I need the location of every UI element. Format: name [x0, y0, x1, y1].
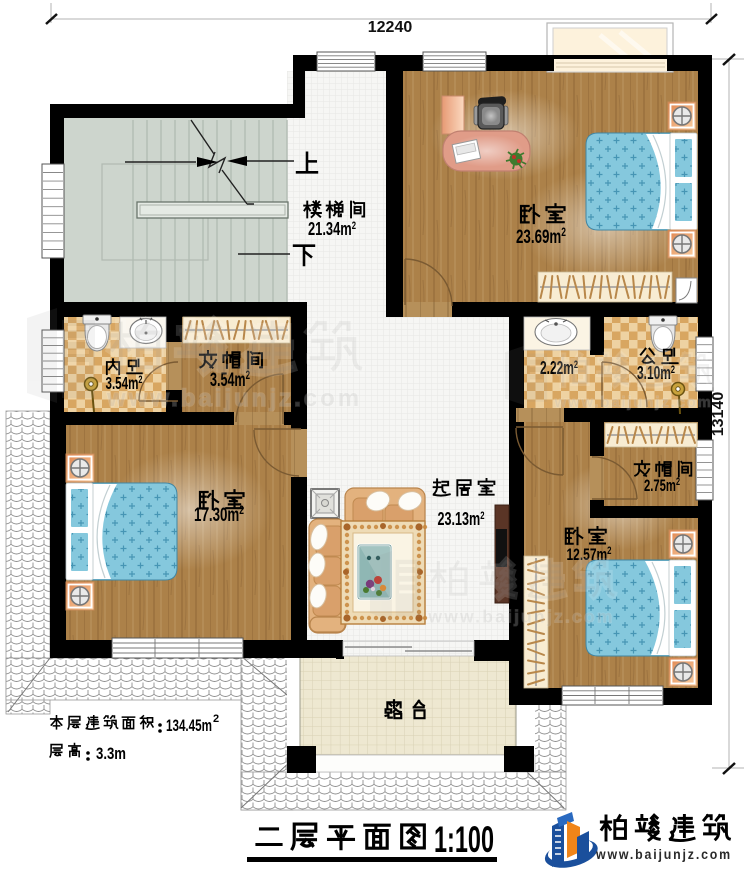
svg-text:23.69m2: 23.69m2 — [516, 225, 566, 248]
svg-text:www.baijunjz.com: www.baijunjz.com — [106, 385, 362, 412]
svg-text:2.75m2: 2.75m2 — [644, 476, 680, 495]
svg-text:21.34m2: 21.34m2 — [308, 218, 356, 239]
svg-text:1:100: 1:100 — [434, 819, 494, 860]
svg-text:17.30m2: 17.30m2 — [194, 503, 244, 526]
svg-text:www.baijunjz.com: www.baijunjz.com — [427, 607, 614, 627]
svg-text:134.45m: 134.45m — [166, 716, 212, 735]
svg-text:2: 2 — [213, 713, 219, 725]
svg-text:12240: 12240 — [368, 19, 413, 36]
svg-text:www.baijunjz.com: www.baijunjz.com — [554, 395, 713, 411]
svg-text:www.baijunjz.com: www.baijunjz.com — [595, 847, 732, 862]
svg-text:3.3m: 3.3m — [96, 744, 126, 763]
svg-text:23.13m2: 23.13m2 — [438, 509, 485, 529]
